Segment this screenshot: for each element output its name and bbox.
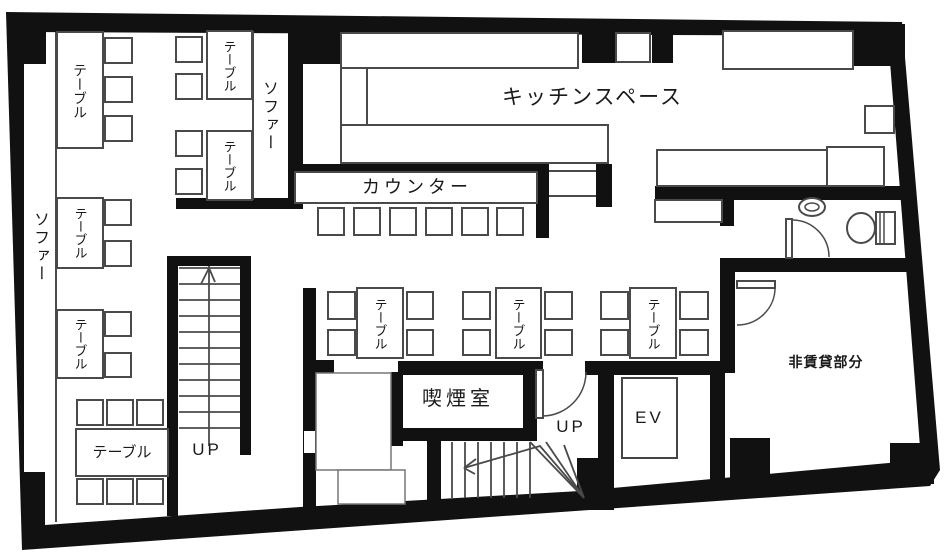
chair: [77, 479, 103, 504]
counter-seat: [462, 208, 488, 235]
label-table-4: テーブル: [217, 34, 241, 98]
chair: [137, 479, 163, 504]
kitchen-island-column: [341, 68, 367, 125]
chairs-left-wing: [105, 38, 132, 377]
entry-vestibule: [338, 470, 405, 504]
wall-below-tables-a: [303, 360, 334, 373]
sink-basin-icon: [805, 203, 819, 211]
label-table-9: テーブル: [82, 443, 162, 461]
kitchen-island: [341, 125, 608, 163]
kitchen-counter-row: [657, 150, 827, 186]
kitchen-appliance: [827, 147, 884, 186]
wall-smoking-bottom: [391, 428, 524, 441]
wall-topright-corner: [853, 24, 905, 66]
chair: [105, 38, 132, 63]
counter-seat: [497, 208, 523, 235]
chair: [105, 77, 132, 102]
stair-door-leaf: [536, 370, 543, 418]
label-up-lower-stairs: UP: [550, 417, 592, 435]
chair: [545, 292, 572, 319]
label-table-2: テーブル: [68, 196, 92, 270]
wall-opening: [304, 431, 315, 453]
kitchen-sink-box: [865, 106, 894, 133]
label-smoking-room: 喫煙室: [413, 388, 503, 410]
pillar-nonrental-left: [730, 438, 770, 485]
floor-plan: キッチンスペース カウンター 喫煙室 非賃貸部分 UP UP EV ソファー ソ…: [0, 0, 944, 553]
chair: [137, 400, 163, 425]
corridor-cabinet: [655, 200, 722, 222]
chair: [328, 292, 355, 319]
chair: [176, 74, 202, 99]
chair: [328, 330, 355, 355]
wall-nonrental-left-upper: [720, 258, 735, 373]
chair: [105, 200, 131, 225]
label-table-6: テーブル: [368, 292, 392, 356]
chair: [105, 353, 131, 377]
nonrental-door-leaf: [737, 281, 775, 288]
label-table-8: テーブル: [641, 292, 665, 356]
chair: [176, 131, 202, 156]
counter-seat: [390, 208, 416, 235]
chair: [407, 292, 433, 319]
label-counter: カウンター: [357, 177, 477, 197]
wall-top-stub-a: [582, 24, 616, 63]
wall-ev-left-lower: [577, 458, 614, 510]
chair: [680, 292, 708, 319]
label-elevator: EV: [627, 407, 672, 427]
label-non-rental: 非賃貸部分: [776, 354, 876, 370]
wall-mid-left: [303, 288, 316, 516]
floor-plan-drawing: [0, 0, 944, 553]
wall-stair-top: [167, 256, 251, 266]
chair: [463, 292, 490, 319]
counter-seat: [426, 208, 452, 235]
wall-top-stub-b: [652, 24, 673, 63]
label-table-3: テーブル: [68, 308, 92, 380]
wall-nonrental-left-lower: [710, 368, 725, 493]
pillar-nonrental-right: [890, 443, 934, 484]
wall-stairdown-left: [427, 428, 441, 508]
kitchen-island: [341, 33, 578, 68]
wall-smoking-right: [523, 366, 537, 441]
chair: [105, 312, 131, 336]
chair: [107, 400, 133, 425]
wall-topleft-notch: [22, 30, 46, 64]
chair: [176, 169, 202, 194]
chair: [601, 330, 628, 355]
chair: [105, 116, 132, 141]
kitchen-door: [616, 33, 650, 62]
chair: [107, 479, 133, 504]
chair: [463, 330, 490, 355]
chair: [105, 241, 131, 266]
chair: [77, 400, 103, 425]
chair: [407, 330, 433, 355]
chair: [176, 37, 202, 62]
toilet-tank-icon: [876, 212, 895, 244]
wall-nonrental-top: [726, 258, 914, 272]
label-table-7: テーブル: [506, 292, 530, 356]
wall-kitchen-left-stub: [293, 24, 341, 64]
wall-ev-left-upper: [598, 366, 614, 470]
label-sofa-left: ソファー: [28, 197, 50, 297]
chair: [680, 330, 708, 355]
chair: [601, 292, 628, 319]
wall-below-tables-b: [398, 361, 543, 375]
kitchen-bench: [723, 31, 853, 69]
label-up-main-stairs: UP: [188, 440, 226, 458]
toilet-icon: [847, 213, 875, 243]
label-sofa-top: ソファー: [256, 68, 280, 164]
toilet-door-leaf: [786, 219, 792, 258]
label-kitchen: キッチンスペース: [490, 85, 695, 109]
wall-toilet-top: [655, 186, 905, 200]
chair: [545, 330, 572, 355]
storage-room: [316, 373, 391, 470]
label-table-5: テーブル: [217, 134, 241, 198]
counter-seat: [318, 208, 344, 235]
wall-pass-block: [596, 164, 612, 207]
wall-stair-right: [240, 256, 251, 455]
counter-seat: [354, 208, 380, 235]
label-table-1: テーブル: [68, 48, 92, 134]
